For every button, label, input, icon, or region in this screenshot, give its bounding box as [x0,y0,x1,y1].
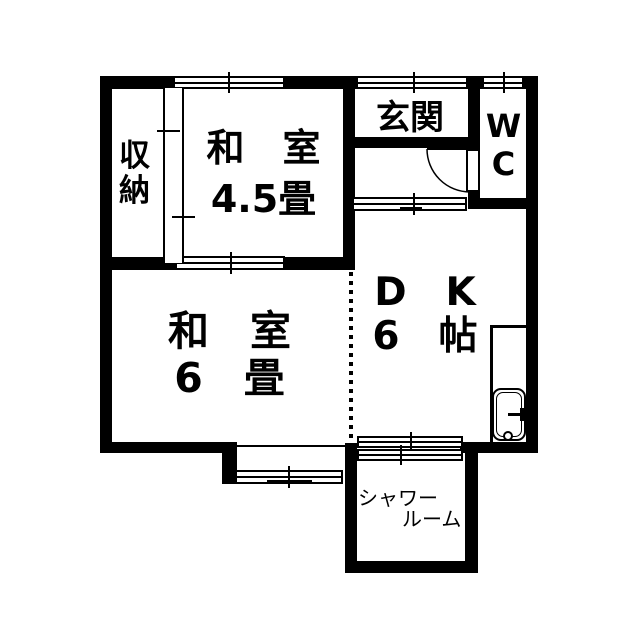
window-handle [267,480,312,482]
fusuma-washitsu45-washitsu6 [175,256,285,270]
room-label-wc: W C [482,107,525,183]
bay-window-top-line [233,445,347,447]
room-label-genkan: 玄関 [352,99,468,137]
room-label-washitsu6-name: 和 室 [112,309,347,354]
shower-sliding-door-track1 [357,436,463,448]
window-midline [354,203,465,205]
outer-wall-right [526,76,538,453]
window-midline [358,82,466,84]
room-label-washitsu6-size: 6 畳 [112,356,347,401]
bay-window-washitsu6 [235,470,343,484]
window-tick [503,72,505,93]
sink-faucet-knob [520,408,528,421]
window-tick [288,466,290,488]
wall-shower-left [345,443,357,573]
window-tick [230,252,232,274]
wall-shower-bottom [345,561,478,573]
floorplan: 収 納 和 室 4.5畳 玄関 W C 和 室 6 畳 D K 6 帖 シャワー… [0,0,639,640]
sink-drain [503,431,513,441]
room-label-shower-line1: シャワー [358,487,438,509]
room-label-washitsu45-size: 4.5畳 [184,178,343,220]
wall-washitsu6-bottom [100,442,237,453]
room-label-dk-size: 6 帖 [352,315,498,358]
window-tick [413,72,415,93]
window-handle [400,207,422,209]
window-midline [359,454,461,456]
room-label-dk-name: D K [352,271,498,314]
fusuma-closet [163,88,184,263]
window-tick [157,130,180,132]
window-wc-top [482,76,524,89]
window-tick [413,193,415,215]
wc-door-swing-arc [420,140,482,202]
window-washitsu45-top [173,76,285,89]
room-label-washitsu45-name: 和 室 [184,127,343,169]
window-tick [400,445,402,465]
room-label-shower-line2: ルーム [402,508,461,530]
window-tick [228,72,230,93]
shower-sliding-door-track2 [357,449,463,461]
sliding-door-genkan-entry [356,76,468,89]
wall-shower-right [465,442,478,573]
room-label-closet: 収 納 [112,139,157,209]
